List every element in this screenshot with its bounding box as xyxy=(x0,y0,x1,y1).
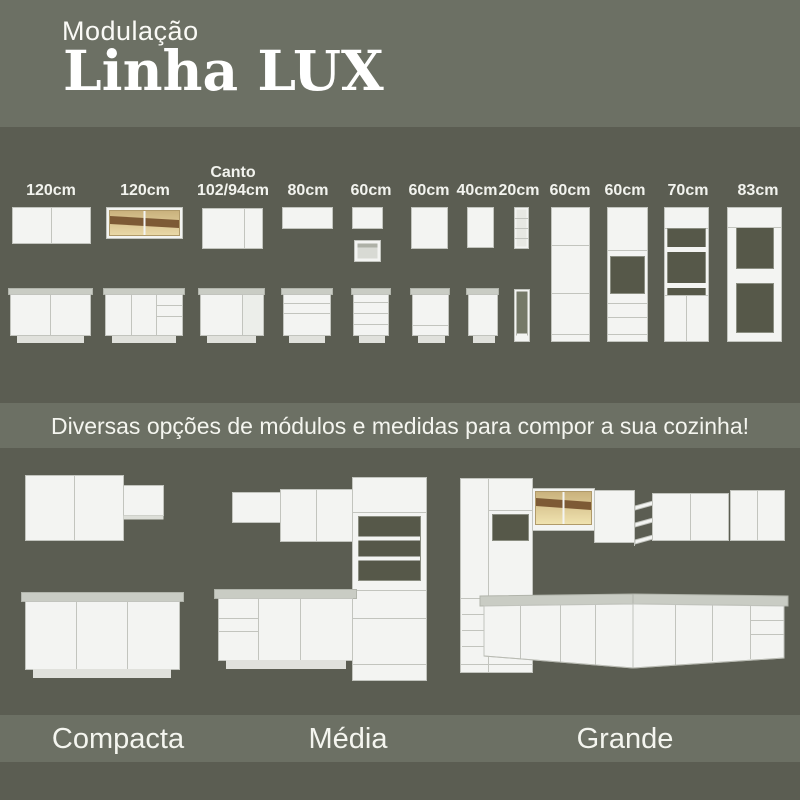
module-wall-corner-graphic xyxy=(198,207,268,344)
module-wall-60-a-graphic xyxy=(351,207,391,344)
module-label-tall-60-oven: 60cm xyxy=(595,163,655,200)
grande-wall-cabinets xyxy=(533,489,785,547)
module-label-niche-20: 20cm xyxy=(492,163,546,200)
module-label-tall-83-fridge: 83cm xyxy=(728,163,788,200)
kitchen-media-graphic xyxy=(208,468,438,693)
page-title: Linha LUX xyxy=(63,40,384,102)
kitchen-label-compacta: Compacta xyxy=(38,721,198,757)
module-tall-83-fridge-graphic xyxy=(726,207,784,344)
module-niche-20-graphic xyxy=(513,207,531,344)
module-label-wall-80: 80cm xyxy=(272,163,344,200)
kitchen-label-grande: Grande xyxy=(545,721,705,757)
grande-base-cabinets xyxy=(480,594,788,668)
media-base-cabinets xyxy=(215,590,357,670)
module-label-wall-120-glass: 120cm xyxy=(105,163,185,200)
module-tall-60-oven-graphic xyxy=(606,207,650,344)
module-tall-70-microwave-graphic xyxy=(663,207,711,344)
module-wall-40-graphic xyxy=(466,207,500,344)
compacta-base-cabinets xyxy=(22,593,184,679)
compacta-wall-cabinets xyxy=(26,476,164,541)
module-label-tall-70-microwave: 70cm xyxy=(658,163,718,200)
module-label-tall-60-pantry: 60cm xyxy=(540,163,600,200)
module-label-wall-60-a: 60cm xyxy=(339,163,403,200)
module-wall-80-graphic xyxy=(281,207,333,344)
module-wall-120-glass-graphic xyxy=(103,207,185,344)
kitchen-label-media: Média xyxy=(268,721,428,757)
kitchen-grande-graphic xyxy=(450,468,795,683)
linha-lux-modulation-infographic: Modulação Linha LUX 120cm 120cm Canto102… xyxy=(0,0,800,800)
module-label-wall-corner: Canto102/94cm xyxy=(193,163,273,200)
module-tall-60-pantry-graphic xyxy=(550,207,592,344)
module-wall-120-two-door-graphic xyxy=(8,207,94,344)
module-label-wall-120-two-door: 120cm xyxy=(11,163,91,200)
media-tall-cabinet xyxy=(353,478,427,681)
kitchen-compacta-graphic xyxy=(15,468,195,693)
module-wall-60-b-graphic xyxy=(410,207,450,344)
banner-text: Diversas opções de módulos e medidas par… xyxy=(0,403,800,448)
media-wall-cabinets xyxy=(233,490,353,542)
